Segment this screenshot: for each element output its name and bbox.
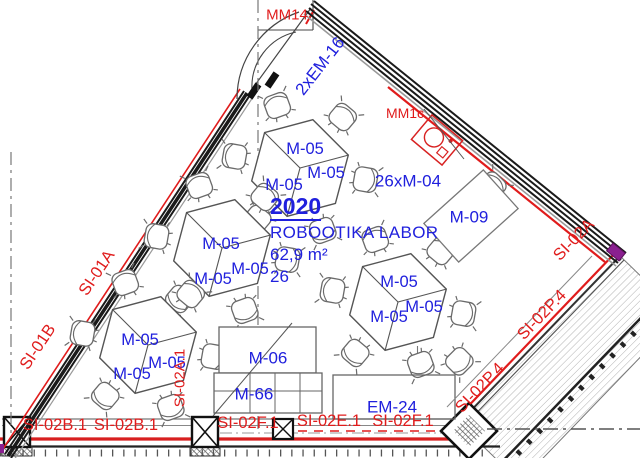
wall-label-si-02f1-b: SI-02F.1 bbox=[372, 413, 433, 430]
table-label-m05: M-05 bbox=[307, 165, 345, 182]
room-area-label: 62,9 m² bbox=[270, 246, 328, 263]
table-label-m05: M-05 bbox=[370, 309, 408, 326]
wall-label-si-02b1-b: SI-02B.1 bbox=[94, 417, 158, 434]
wall-label-si-02a: SI-02A bbox=[551, 216, 598, 264]
wall-label-si-02f1-a: SI-02F.1 bbox=[217, 415, 278, 432]
wall-label-si-01a: SI-01A bbox=[76, 247, 118, 298]
side-table-label: M-09 bbox=[450, 209, 489, 226]
wall-label-si-02a1: SI-02A.1 bbox=[173, 349, 188, 407]
floor-plan: 2020 ROBOOTIKA LABOR 62,9 m² 26 2xEM-16 … bbox=[0, 0, 640, 458]
table-label-m05: M-05 bbox=[286, 141, 324, 158]
wall-label-si-02p4-a: SI-02P.4 bbox=[453, 360, 508, 416]
door-label-mm14: MM14 bbox=[266, 8, 308, 23]
table-label-m05: M-05 bbox=[380, 274, 418, 291]
annotation-layer: 2020 ROBOOTIKA LABOR 62,9 m² 26 2xEM-16 … bbox=[0, 0, 640, 458]
top-wall-label: 2xEM-16 bbox=[292, 34, 347, 98]
table-label-m05: M-05 bbox=[231, 261, 269, 278]
room-number-label: 2020 bbox=[270, 195, 321, 221]
table-label-m05: M-05 bbox=[194, 271, 232, 288]
chairs-count-label: 26xM-04 bbox=[375, 173, 441, 190]
table-label-m05: M-05 bbox=[202, 236, 240, 253]
wall-label-si-02p4-b: SI-02P.4 bbox=[515, 287, 570, 343]
cabinet-m06-label: M-06 bbox=[249, 350, 288, 367]
wall-label-si-01b: SI-01B bbox=[17, 321, 59, 372]
table-label-m05: M-05 bbox=[405, 299, 443, 316]
wall-label-si-02b1-a: SI-02B.1 bbox=[23, 417, 87, 434]
equipment-label-mm1c: MM1c bbox=[386, 106, 424, 120]
table-label-m05: M-05 bbox=[121, 332, 159, 349]
table-label-m05: M-05 bbox=[113, 366, 151, 383]
room-name-label: ROBOOTIKA LABOR bbox=[270, 224, 439, 241]
room-capacity-label: 26 bbox=[270, 268, 289, 285]
cabinet-m66-label: M-66 bbox=[235, 386, 274, 403]
table-label-m05: M-05 bbox=[265, 177, 303, 194]
wall-label-si-02e1: SI-02E.1 bbox=[297, 413, 361, 430]
